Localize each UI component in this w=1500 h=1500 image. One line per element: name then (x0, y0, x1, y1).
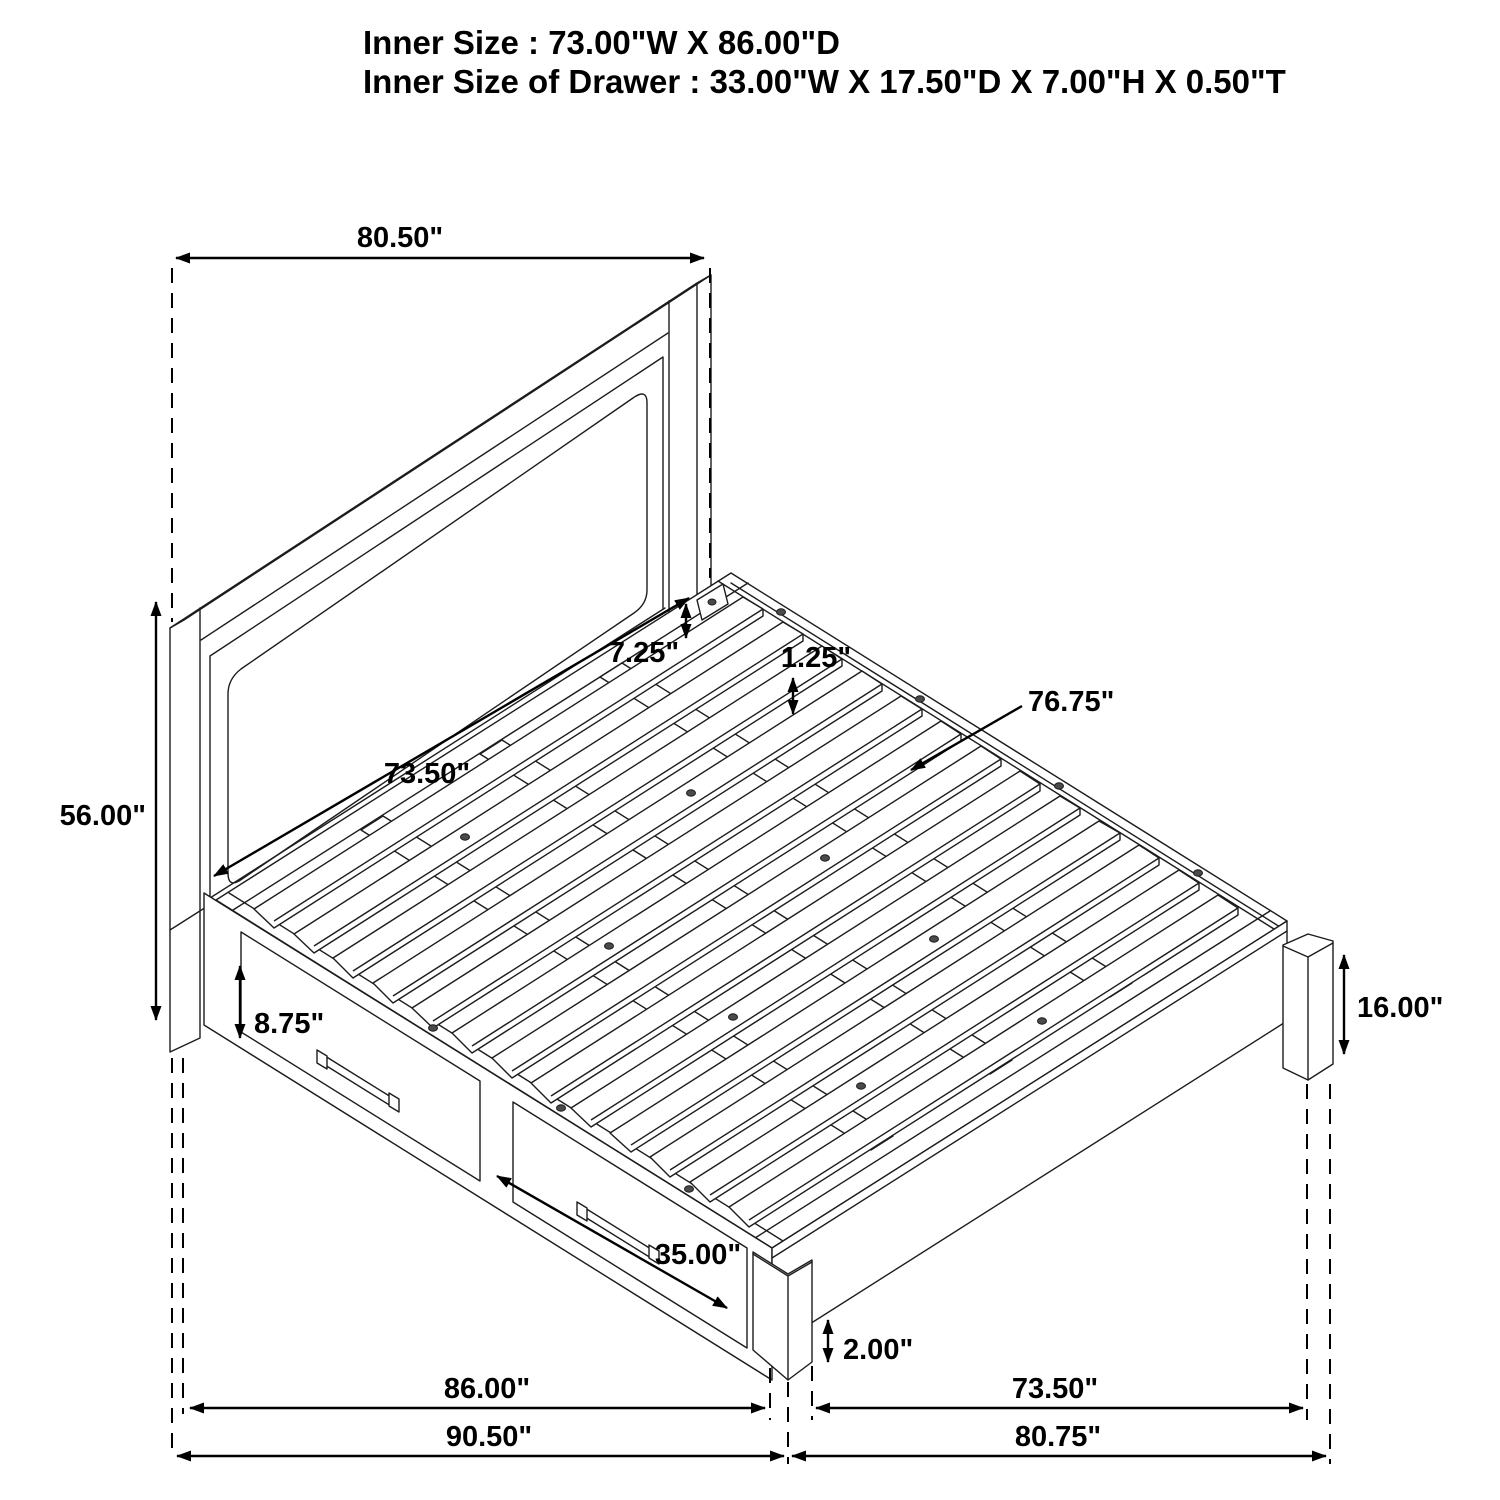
dimension-label: 73.50" (384, 758, 470, 790)
dimension-label: 76.75" (1028, 686, 1114, 718)
left-leg (170, 917, 200, 1052)
title-block: Inner Size : 73.00"W X 86.00"D Inner Siz… (363, 24, 1286, 100)
dimension-label: 56.00" (60, 800, 146, 832)
dimension-label: 1.25" (781, 642, 851, 674)
title-line-2: Inner Size of Drawer : 33.00"W X 17.50"D… (363, 63, 1286, 100)
dimension-label: 80.50" (357, 222, 443, 254)
dimension-side-inner-length: 86.00" (190, 1373, 765, 1408)
right-leg (1283, 934, 1333, 1080)
dimension-label: 35.00" (655, 1239, 741, 1271)
dimension-label: 80.75" (1015, 1421, 1101, 1453)
dimension-headboard-width: 80.50" (176, 222, 704, 258)
dimension-label: 8.75" (254, 1008, 324, 1040)
dimension-label: 7.25" (609, 637, 679, 669)
dimension-footboard-inner-width: 73.50" (816, 1373, 1303, 1408)
dimension-label: 2.00" (843, 1334, 913, 1366)
dimension-side-overall-length: 90.50" (177, 1421, 784, 1456)
dimension-footboard-overall-width: 80.75" (792, 1421, 1326, 1456)
bed-drawing (170, 275, 1333, 1380)
dimension-label: 90.50" (446, 1421, 532, 1453)
bed-dimension-diagram: Inner Size : 73.00"W X 86.00"D Inner Siz… (0, 0, 1500, 1500)
dimension-ground-clearance: 2.00" (828, 1320, 913, 1366)
dimension-footboard-height: 16.00" (1344, 955, 1443, 1054)
diagram-page: Inner Size : 73.00"W X 86.00"D Inner Siz… (0, 0, 1500, 1500)
dimension-headboard-height: 56.00" (60, 602, 156, 1020)
title-line-1: Inner Size : 73.00"W X 86.00"D (363, 24, 840, 61)
dimension-label: 16.00" (1357, 992, 1443, 1024)
dimension-label: 73.50" (1012, 1373, 1098, 1405)
dimension-label: 86.00" (444, 1373, 530, 1405)
